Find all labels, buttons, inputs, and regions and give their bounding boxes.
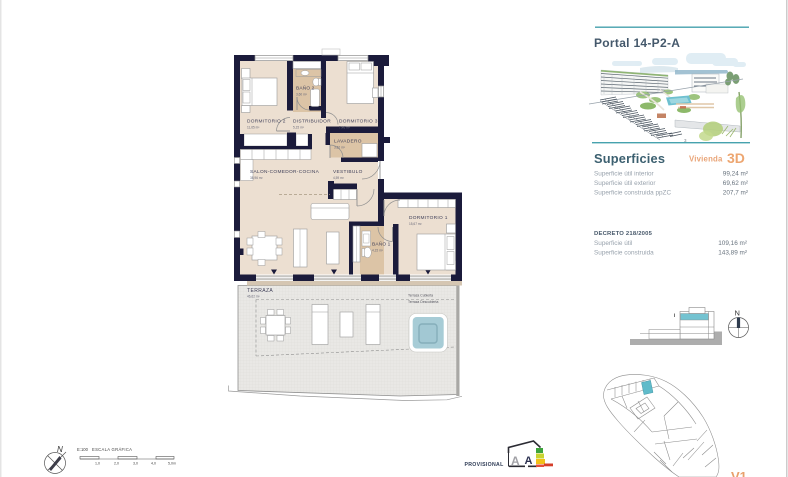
svg-text:V1: V1 — [731, 469, 747, 477]
svg-text:Terraza Descubierta: Terraza Descubierta — [408, 300, 438, 304]
svg-text:3,62 m²: 3,62 m² — [334, 145, 345, 149]
svg-text:109,16 m²: 109,16 m² — [718, 240, 747, 247]
svg-text:Superficie construida: Superficie construida — [594, 250, 654, 257]
svg-text:Vivienda: Vivienda — [689, 155, 723, 164]
svg-text:E:100: E:100 — [77, 447, 89, 452]
svg-text:DISTRIBUIDOR: DISTRIBUIDOR — [293, 119, 331, 125]
svg-text:ESCALA GRÁFICA: ESCALA GRÁFICA — [92, 447, 132, 452]
svg-text:4,15 m²: 4,15 m² — [372, 248, 383, 252]
svg-text:DECRETO 218/2005: DECRETO 218/2005 — [594, 231, 653, 237]
svg-text:Superficie útil exterior: Superficie útil exterior — [594, 180, 656, 187]
svg-text:DORMITORIO 2: DORMITORIO 2 — [247, 119, 286, 125]
svg-text:Superficie útil: Superficie útil — [594, 240, 632, 247]
svg-text:DORMITORIO 1: DORMITORIO 1 — [409, 215, 448, 221]
svg-text:Superficie construida ppZC: Superficie construida ppZC — [594, 190, 671, 197]
svg-text:Superficie útil interior: Superficie útil interior — [594, 171, 655, 178]
svg-text:Superficies: Superficies — [594, 151, 665, 166]
svg-text:5,0m: 5,0m — [168, 462, 176, 466]
svg-text:BAÑO 1: BAÑO 1 — [372, 241, 391, 248]
svg-text:A: A — [511, 454, 520, 468]
svg-text:3D: 3D — [727, 150, 745, 166]
svg-text:69,62 m²: 69,62 m² — [723, 180, 748, 187]
svg-text:99,24 m²: 99,24 m² — [723, 171, 748, 178]
svg-text:TERRAZA: TERRAZA — [247, 288, 273, 294]
svg-text:2,0: 2,0 — [114, 462, 119, 466]
svg-text:3,60 m²: 3,60 m² — [296, 92, 307, 96]
svg-text:Portal 14-P2-A: Portal 14-P2-A — [594, 36, 680, 50]
svg-text:7,46 m²: 7,46 m² — [339, 125, 350, 129]
svg-text:PROVISIONAL: PROVISIONAL — [465, 462, 505, 468]
svg-text:46,62 m²: 46,62 m² — [247, 295, 260, 299]
svg-text:5,15 m²: 5,15 m² — [293, 125, 304, 129]
svg-text:38,96 m²: 38,96 m² — [250, 176, 263, 180]
svg-text:N: N — [735, 309, 740, 318]
svg-text:4,0: 4,0 — [151, 462, 156, 466]
svg-text:11,65 m²: 11,65 m² — [247, 125, 259, 129]
svg-text:143,89 m²: 143,89 m² — [718, 250, 747, 257]
svg-text:Terraza Cubierta: Terraza Cubierta — [408, 294, 433, 298]
svg-text:15,67 m²: 15,67 m² — [409, 222, 422, 226]
svg-text:207,7 m²: 207,7 m² — [723, 190, 748, 197]
svg-text:1,0: 1,0 — [95, 462, 100, 466]
svg-text:LAVADERO: LAVADERO — [334, 139, 362, 145]
svg-text:SALON-COMEDOR-COCINA: SALON-COMEDOR-COCINA — [250, 169, 320, 175]
svg-text:BAÑO 2: BAÑO 2 — [296, 85, 315, 92]
svg-text:4,59 m²: 4,59 m² — [333, 176, 344, 180]
svg-text:A: A — [525, 455, 533, 467]
svg-text:N: N — [57, 445, 63, 454]
svg-text:3,0: 3,0 — [133, 462, 138, 466]
svg-text:VESTIBULO: VESTIBULO — [333, 169, 363, 175]
svg-text:DORMITORIO 3: DORMITORIO 3 — [339, 119, 378, 125]
